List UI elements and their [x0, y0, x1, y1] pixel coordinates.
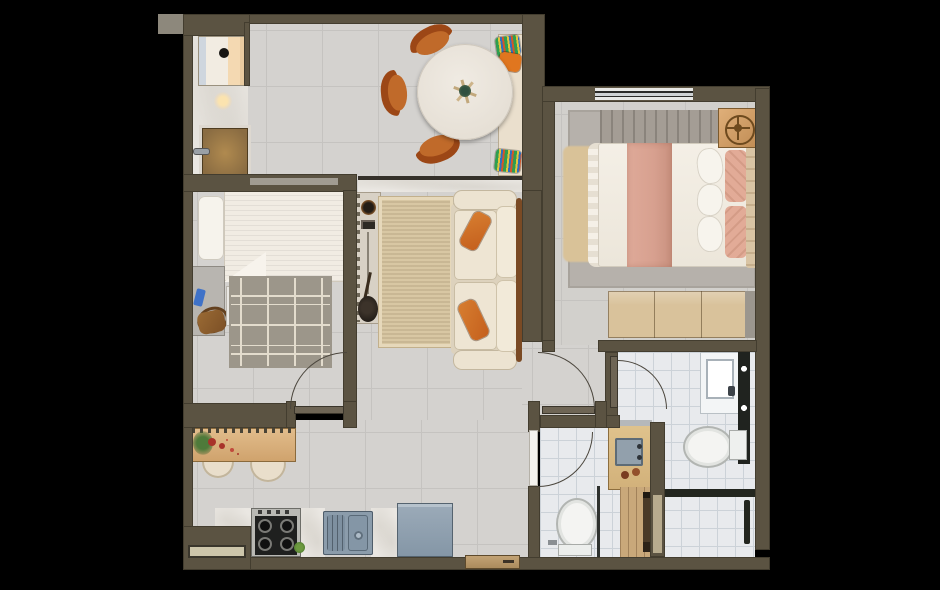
vanity2-faucet-icon: [728, 386, 735, 396]
entry-door: [202, 128, 248, 178]
burner-4: [280, 537, 294, 551]
speaker-icon: [361, 200, 376, 215]
shower2-glass: [660, 489, 755, 497]
ceiling-light: [214, 92, 232, 110]
wall-living-right: [522, 190, 542, 342]
wall-bedroom2-bottom-corner: [542, 340, 555, 352]
shower1-glass: [597, 486, 600, 557]
console-box-icon: [361, 220, 375, 229]
bedroom2-window: [595, 88, 693, 100]
jute-rug: [379, 197, 453, 347]
sink-drainboard: [327, 515, 345, 551]
bed2-pink-pillow-2: [725, 206, 747, 258]
wall-bedroom1-top-sill: [250, 178, 338, 185]
shower2-floor: [663, 492, 755, 557]
burner-3: [258, 537, 272, 551]
guitar-body: [358, 296, 378, 322]
flower-blossoms: [208, 438, 216, 446]
service-door-handle-icon: [503, 560, 514, 563]
bathroom1-door-leaf: [529, 430, 538, 486]
burner-1: [258, 519, 272, 533]
toilet1-tank: [558, 544, 592, 556]
wall-bedroom2-bottom: [598, 340, 757, 352]
vanity1-sink: [615, 438, 643, 466]
toilet2-bowl: [683, 426, 733, 468]
soap-2: [632, 468, 640, 476]
exterior-ledge: [158, 14, 183, 34]
wall-door2-jamb-right: [595, 401, 607, 428]
wall-entry-top: [183, 14, 250, 36]
wall-left: [183, 14, 193, 562]
wall-bathroom1-top: [540, 415, 620, 428]
stove-knobs: [258, 510, 294, 514]
wall-bedroom2-left: [542, 88, 555, 352]
washing-machine: [198, 36, 246, 86]
toilet1-bowl: [556, 498, 598, 550]
entry-door-handle-icon: [194, 149, 209, 154]
vanity1-faucet-dot-1: [637, 444, 642, 449]
bathroom2-door-leaf: [610, 356, 618, 408]
geometric-rug: [229, 276, 332, 368]
bed1-pillow: [198, 196, 224, 260]
vanity1-faucet-dot-2: [637, 455, 642, 460]
herb-pot: [294, 542, 305, 553]
bed1-duvet: [224, 190, 347, 282]
wall-entry-divider: [244, 22, 250, 86]
washing-machine-door-icon: [219, 48, 229, 58]
wall-bathrooms-middle-ledge: [653, 495, 662, 553]
wall-bedroom1-bottom: [183, 403, 293, 428]
plant-centerpiece: [459, 85, 471, 97]
wardrobe: [608, 291, 752, 338]
soap-1: [621, 471, 629, 479]
wall-bathroom1-left-lower: [528, 486, 540, 562]
toilet1-pipe: [548, 540, 557, 545]
wall-right: [755, 88, 770, 550]
sink-drain: [354, 531, 363, 540]
shower2-fixture: [744, 500, 750, 544]
sofa-arm-bottom: [453, 350, 517, 370]
striped-pillow-bottom: [494, 149, 522, 174]
floor-plan: [0, 0, 940, 590]
burner-2: [280, 519, 294, 533]
refrigerator: [397, 503, 453, 557]
sofa-back-cushion-2: [496, 280, 518, 352]
bed2-pink-pillow-1: [725, 150, 747, 202]
wheel-hub: [734, 124, 742, 132]
planter: [188, 545, 246, 558]
shower1-column: [643, 492, 650, 552]
dining-chair-left: [379, 69, 409, 117]
counter-right: [371, 508, 400, 557]
bed2-pink-runner: [627, 143, 672, 267]
sofa-back-cushion-1: [496, 206, 518, 278]
toilet2-tank: [729, 430, 747, 460]
